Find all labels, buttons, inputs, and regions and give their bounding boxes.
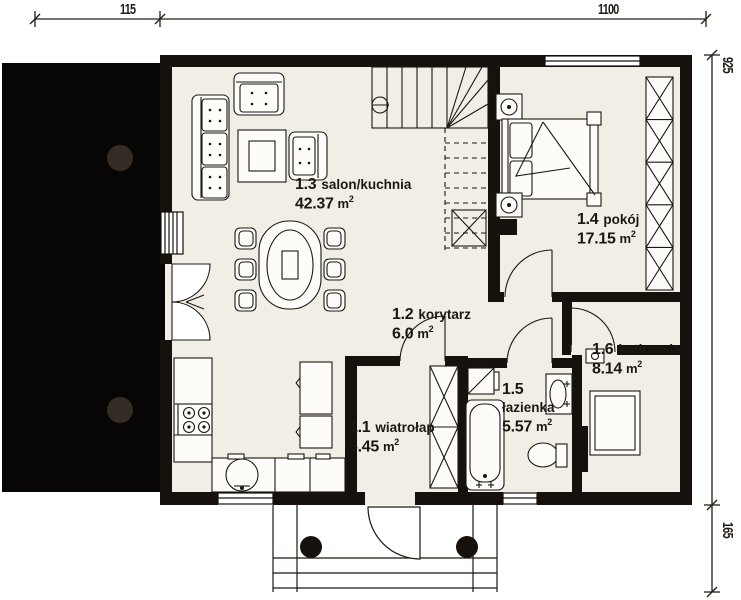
fridge-icon [296, 362, 332, 414]
cabinet-icon [296, 416, 332, 448]
dimension-label-right-bottom: 165 [719, 522, 736, 538]
window-icon [218, 493, 273, 504]
terrace [2, 63, 165, 492]
door-swing-icon [368, 507, 420, 559]
toilet-icon [528, 443, 567, 467]
bathtub-icon [466, 400, 504, 490]
double-bed-icon [502, 112, 601, 206]
radiator-icon [161, 212, 183, 254]
room-label-salon-kuchnia: 1.3salon/kuchnia 42.37m2 [295, 176, 411, 213]
room-label-kotlownia: 1.6kotłownia 8.14m2 [592, 341, 681, 378]
armchair-icon [234, 73, 284, 115]
dining-table-icon [259, 221, 321, 309]
terrace-column-icon [107, 145, 133, 171]
dimension-label-top-left: 115 [120, 1, 135, 18]
room-label-wiatrolap: 1.1wiatrołap 6.45m2 [349, 419, 435, 456]
window-icon [545, 56, 640, 66]
porch-column-icon [456, 536, 478, 558]
stove-icon [178, 404, 212, 435]
room-label-pokoj: 1.4pokój 17.15m2 [577, 211, 639, 248]
shelf-icon [468, 368, 499, 394]
dimension-label-right-top: 925 [719, 57, 736, 73]
entrance-porch [273, 505, 497, 592]
coffee-table-icon [238, 130, 286, 182]
sofa-icon [192, 95, 229, 200]
chimney-block [496, 219, 517, 235]
dimension-label-top-right: 1100 [598, 1, 619, 18]
room-label-korytarz: 1.2korytarz 6.0m2 [392, 306, 471, 343]
plan-drawing [0, 0, 741, 600]
room-label-lazienka: 1.5 łazienka 5.57m2 [502, 381, 555, 436]
porch-column-icon [300, 536, 322, 558]
entrance-steps-icon [273, 558, 497, 588]
wardrobe-icon [646, 77, 673, 290]
boiler-icon [590, 391, 640, 455]
armchair-icon [289, 132, 327, 180]
nightstand-lamp-icon [496, 94, 522, 120]
window-icon [503, 493, 537, 504]
nightstand-lamp-icon [496, 193, 522, 217]
floor-plan-page: 1.3salon/kuchnia 42.37m2 1.4pokój 17.15m… [0, 0, 741, 600]
terrace-column-icon [107, 397, 133, 423]
entrance-threshold [365, 492, 415, 505]
